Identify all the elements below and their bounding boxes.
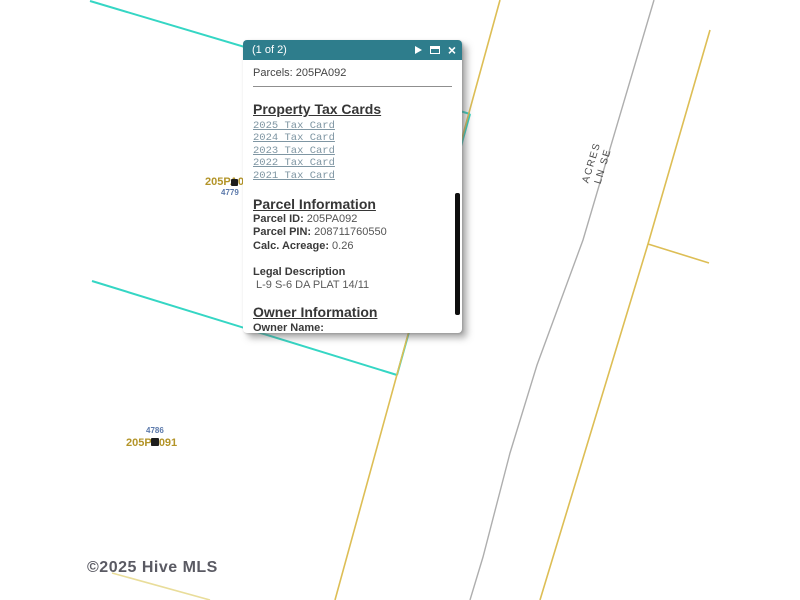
owner-name-label: Owner Name: [253, 322, 452, 333]
calc-acreage-label: Calc. Acreage: [253, 240, 329, 252]
tax-card-link-2022[interactable]: 2022 Tax Card [253, 157, 452, 169]
tax-card-link-2024[interactable]: 2024 Tax Card [253, 132, 452, 144]
popup-titlebar[interactable]: (1 of 2) × [243, 40, 462, 60]
calc-acreage-row: Calc. Acreage:0.26 [253, 240, 452, 252]
legal-description-value: L-9 S-6 DA PLAT 14/11 [253, 279, 452, 291]
calc-acreage-value: 0.26 [332, 240, 353, 252]
tax-card-link-2025[interactable]: 2025 Tax Card [253, 120, 452, 132]
parcel-id-row: Parcel ID:205PA092 [253, 213, 452, 225]
address-label-4779: 4779 [221, 188, 239, 197]
gis-map-view: { "popup": { "paging": "(1 of 2)", "clos… [0, 0, 800, 600]
road-line [470, 0, 654, 600]
parcel-id-label: Parcel ID: [253, 213, 304, 225]
next-feature-icon[interactable] [415, 46, 422, 54]
tax-card-link-2023[interactable]: 2023 Tax Card [253, 145, 452, 157]
legal-description-label: Legal Description [253, 266, 452, 278]
feature-popup: (1 of 2) × Parcels: 205PA092 Property Ta… [243, 40, 462, 333]
popup-titlebar-icons: × [415, 45, 456, 55]
structure-marker-icon [151, 438, 159, 446]
parcel-id-value: 205PA092 [307, 213, 358, 225]
popup-scrollbar[interactable] [455, 193, 460, 315]
popup-body: Parcels: 205PA092 Property Tax Cards 202… [243, 60, 462, 333]
popup-paging-label: (1 of 2) [252, 44, 415, 56]
close-icon[interactable]: × [448, 45, 456, 55]
dock-popup-icon[interactable] [430, 46, 440, 54]
owner-info-heading: Owner Information [253, 304, 452, 320]
parcel-pin-value: 208711760550 [314, 226, 387, 238]
address-label-4786: 4786 [146, 426, 164, 435]
tax-card-link-2021[interactable]: 2021 Tax Card [253, 170, 452, 182]
tax-cards-heading: Property Tax Cards [253, 101, 452, 117]
tax-card-links: 2025 Tax Card 2024 Tax Card 2023 Tax Car… [253, 120, 452, 182]
structure-marker-icon [231, 179, 238, 186]
parcel-info-heading: Parcel Information [253, 196, 452, 212]
parcel-line-yellow-east [540, 30, 710, 600]
parcel-pin-label: Parcel PIN: [253, 226, 311, 238]
mls-watermark: ©2025 Hive MLS [87, 559, 218, 577]
parcel-line-faint-yellow [112, 573, 210, 600]
popup-divider [253, 86, 452, 87]
popup-title: Parcels: 205PA092 [253, 67, 452, 79]
parcel-pin-row: Parcel PIN:208711760550 [253, 226, 452, 238]
parcel-line-yellow-branch [648, 244, 709, 263]
